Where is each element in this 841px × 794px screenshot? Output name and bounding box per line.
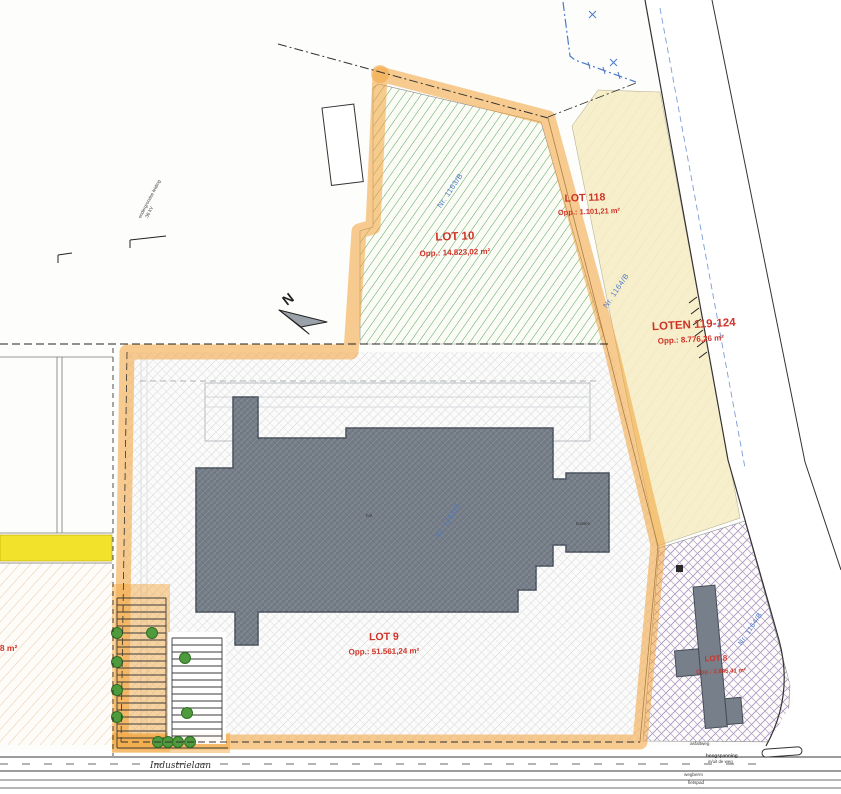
annex-label: burelen xyxy=(576,521,591,526)
tree-marker xyxy=(180,653,191,664)
road-annotation-wegberm: wegberm xyxy=(684,772,703,777)
site-plan-drawing: N LOT 10 Opp.: 14.823,02 m² Nr. 1163/B L… xyxy=(0,0,841,794)
lot-118-label: LOT 118 xyxy=(564,191,605,204)
road-annotation-hoogspanning: hoogspanning xyxy=(706,753,738,758)
left-lot-area: 8,48 m² xyxy=(0,643,17,653)
tree-marker xyxy=(182,708,193,719)
road-name-label: Industrielaan xyxy=(149,761,211,771)
road-annotation-fietspad: fietspad xyxy=(688,780,705,785)
utility-cabin xyxy=(676,565,683,572)
site-plan-scan: N LOT 10 Opp.: 14.823,02 m² Nr. 1163/B L… xyxy=(0,0,841,794)
road-annotation-inuitdeweg: in/uit de weg xyxy=(708,759,733,764)
highlight-corner-blob xyxy=(371,65,389,83)
lot-9-label: LOT 9 xyxy=(369,631,399,644)
hall-label: hal xyxy=(366,513,372,518)
lot-8-label: LOT 8 xyxy=(704,654,728,664)
lot-9-area: Opp.: 51.561,24 m² xyxy=(349,646,420,656)
left-lot-ground xyxy=(0,563,113,745)
yellow-strip xyxy=(0,535,112,561)
road-annotation-asfaltweg: asfaltweg xyxy=(690,741,710,746)
lot-10-label: LOT 10 xyxy=(435,230,474,243)
tree-marker xyxy=(147,628,158,639)
parking-right-bay xyxy=(168,632,226,744)
